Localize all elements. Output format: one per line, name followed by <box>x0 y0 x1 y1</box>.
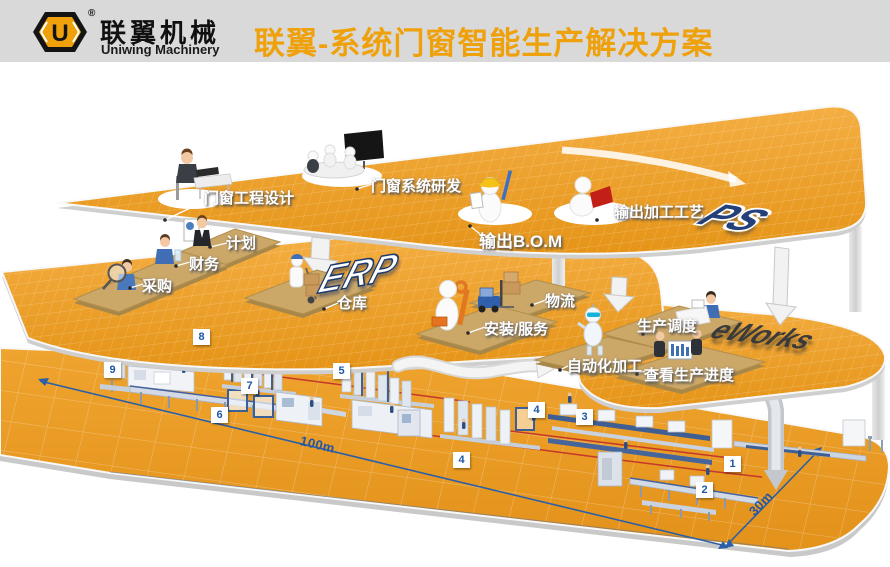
station-label-warehouse: 仓库 <box>337 292 367 313</box>
floor-marker-8: 8 <box>193 329 210 345</box>
floor-marker-3: 3 <box>576 409 593 425</box>
station-label-purchase: 采购 <box>142 275 172 296</box>
page-title: 联翼-系统门窗智能生产解决方案 <box>254 18 713 63</box>
magnifier-icon <box>109 265 126 282</box>
figure-planner <box>184 215 211 246</box>
station-label-process: 输出加工工艺 <box>614 201 704 222</box>
station-label-dispatch: 生产调度 <box>637 315 697 336</box>
floor-marker-1: 1 <box>724 456 741 472</box>
floor-marker-9: 9 <box>104 362 121 378</box>
station-label-plan: 计划 <box>226 232 256 253</box>
floor-marker-7: 7 <box>241 378 258 394</box>
floor-marker-6: 6 <box>211 407 228 423</box>
figure-finance <box>155 234 181 264</box>
station-label-rnd: 门窗系统研发 <box>371 175 461 196</box>
station-label-progress: 查看生产进度 <box>644 364 734 385</box>
station-label-bom: 输出B.O.M <box>479 227 562 252</box>
support-pillar-right-upper <box>849 226 862 312</box>
uniwing-solution-poster: U ® 联翼机械 Uniwing Machinery 联翼-系统门窗智能生产解决… <box>0 0 890 567</box>
station-label-finance: 财务 <box>189 253 219 274</box>
floor-marker-4a: 4 <box>528 402 545 418</box>
registered-mark: ® <box>88 8 95 19</box>
station-label-logistics: 物流 <box>545 290 575 311</box>
station-label-install: 安装/服务 <box>484 318 548 339</box>
uniwing-logo-icon: U <box>32 9 88 55</box>
station-label-auto: 自动化加工 <box>567 355 642 376</box>
floor-marker-4b: 4 <box>453 452 470 468</box>
logo-letter: U <box>51 20 68 47</box>
station-label-design: 门窗工程设计 <box>204 187 294 208</box>
solution-diagram <box>0 62 890 567</box>
brand-name-en: Uniwing Machinery <box>101 42 219 57</box>
floor-marker-2: 2 <box>696 482 713 498</box>
floor-marker-5: 5 <box>333 363 350 379</box>
header-bar: U ® 联翼机械 Uniwing Machinery 联翼-系统门窗智能生产解决… <box>0 0 890 62</box>
